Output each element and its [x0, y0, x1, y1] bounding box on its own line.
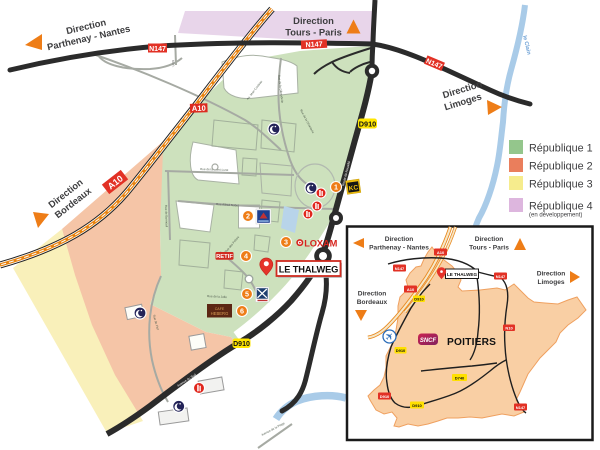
svg-text:N147: N147: [305, 39, 323, 49]
svg-text:Tours - Paris: Tours - Paris: [469, 245, 509, 252]
svg-text:A10: A10: [407, 287, 415, 292]
svg-text:N10: N10: [505, 326, 513, 331]
svg-text:N147: N147: [496, 274, 506, 279]
svg-text:N147: N147: [516, 405, 526, 410]
svg-text:A10: A10: [437, 250, 445, 255]
svg-text:Direction: Direction: [385, 236, 414, 243]
svg-text:KC: KC: [348, 184, 359, 192]
svg-text:le Clain: le Clain: [521, 35, 532, 56]
svg-text:4: 4: [244, 252, 248, 261]
svg-text:Avenue de la Plage: Avenue de la Plage: [261, 421, 286, 437]
svg-text:POITIERS: POITIERS: [447, 337, 496, 348]
svg-text:SNCF: SNCF: [420, 338, 437, 344]
svg-text:D910: D910: [414, 297, 424, 302]
svg-text:N147: N147: [395, 266, 405, 271]
svg-text:Bordeaux: Bordeaux: [357, 299, 388, 306]
svg-text:3: 3: [284, 238, 288, 247]
svg-text:D910: D910: [359, 119, 376, 128]
svg-text:D910: D910: [380, 394, 390, 399]
svg-text:A10: A10: [192, 104, 206, 113]
svg-text:République 3: République 3: [529, 179, 593, 191]
svg-text:D740: D740: [455, 375, 465, 380]
svg-text:LE THALWEG: LE THALWEG: [447, 272, 478, 277]
svg-text:République 4: République 4: [529, 201, 593, 213]
svg-text:RETIF: RETIF: [216, 254, 233, 260]
svg-text:6: 6: [240, 307, 244, 316]
svg-text:D910: D910: [412, 403, 422, 408]
svg-text:LE THALWEG: LE THALWEG: [279, 265, 338, 275]
svg-text:1: 1: [334, 183, 338, 192]
svg-text:Tours - Paris: Tours - Paris: [285, 27, 342, 38]
svg-text:Parthenay - Nantes: Parthenay - Nantes: [369, 245, 429, 252]
svg-text:N147: N147: [149, 46, 166, 53]
svg-text:N147: N147: [425, 58, 443, 71]
svg-text:République 1: République 1: [529, 143, 593, 155]
svg-text:2: 2: [246, 212, 250, 221]
svg-text:Direction: Direction: [358, 291, 387, 298]
svg-text:Rue de Bonneuil: Rue de Bonneuil: [164, 205, 169, 228]
svg-text:Direction: Direction: [475, 236, 504, 243]
svg-text:D910: D910: [396, 348, 406, 353]
svg-text:HEBERG: HEBERG: [211, 311, 229, 316]
svg-text:République 2: République 2: [529, 161, 593, 173]
svg-text:D910: D910: [233, 341, 250, 348]
svg-text:Limoges: Limoges: [537, 279, 564, 286]
svg-text:5: 5: [245, 290, 249, 299]
svg-text:Bd R.: Bd R.: [171, 60, 175, 68]
svg-text:Av. de Beaulieu: Av. de Beaulieu: [339, 300, 345, 322]
svg-text:LOXAM: LOXAM: [304, 238, 337, 248]
svg-text:Direction: Direction: [293, 15, 334, 26]
svg-text:Direction: Direction: [537, 271, 566, 278]
svg-text:(en développement): (en développement): [529, 213, 582, 219]
